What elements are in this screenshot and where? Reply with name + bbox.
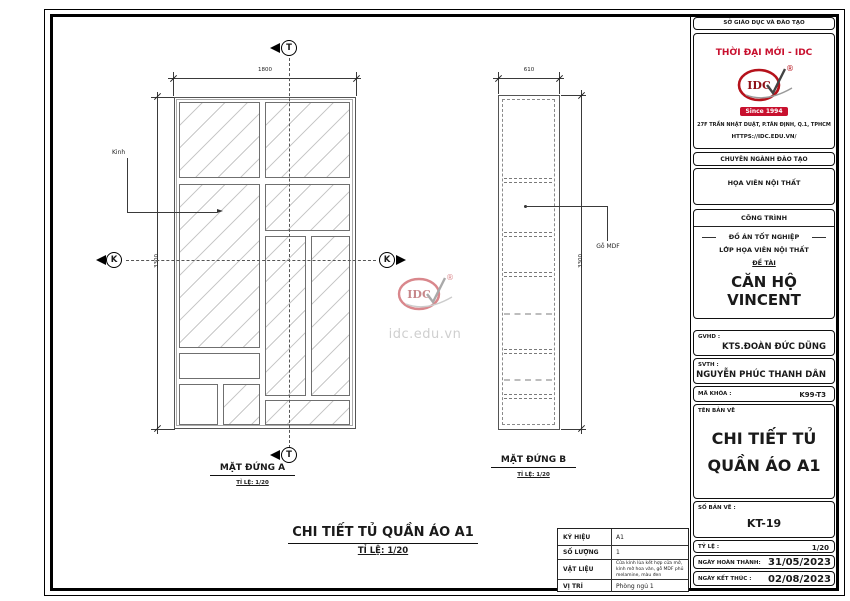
title-block-date-end: NGÀY KẾT THÚC : 02/08/2023 <box>693 571 835 586</box>
hidden-shelf-line <box>504 236 552 237</box>
section-arrow-icon <box>396 255 406 265</box>
glass-callout-label: Kinh <box>112 149 125 156</box>
section-marker-k-left: K <box>106 252 122 268</box>
title-block-student: SVTH : NGUYỄN PHÚC THANH DÂN <box>693 358 835 384</box>
title-block-advisor: GVHD : KTS.ĐOÀN ĐỨC DŨNG <box>693 330 835 356</box>
hidden-edge-rect <box>502 99 555 425</box>
hidden-shelf-line <box>504 353 552 354</box>
scale-value: 1/20 <box>812 544 829 552</box>
glass-panel <box>179 102 260 178</box>
dimension-line <box>168 78 361 79</box>
sheet-scale: TỈ LỆ: 1/20 <box>283 546 483 556</box>
hidden-shelf-line <box>504 394 552 395</box>
section-arrow-icon <box>270 450 280 460</box>
title-block-training-header: CHUYÊN NGÀNH ĐÀO TẠO <box>693 152 835 166</box>
title-block-divider <box>690 14 691 591</box>
date-completed-value: 31/05/2023 <box>768 557 831 568</box>
elevation-b-title: MẶT ĐỨNG B <box>491 455 576 468</box>
registered-mark: ® <box>446 273 454 282</box>
dim-height-b: 3300 <box>578 239 584 283</box>
date-completed-label: NGÀY HOÀN THÀNH: <box>698 560 761 566</box>
table-row: VỊ TRÍ Phòng ngủ 1 <box>558 579 688 592</box>
advisor-label: GVHD : <box>698 334 720 340</box>
class-code-label: MÃ KHÓA : <box>698 391 731 397</box>
hidden-shelf-line <box>504 276 552 277</box>
section-line-k <box>126 260 376 261</box>
leader-line <box>525 206 607 207</box>
section-line-t <box>289 58 290 448</box>
sheet-title-text: CHI TIẾT TỦ QUẦN ÁO A1 <box>288 525 478 544</box>
spec-label: KÝ HIỆU <box>558 529 612 545</box>
title-block-drawing-name: TÊN BẢN VẼ CHI TIẾT TỦ QUẦN ÁO A1 <box>693 404 835 499</box>
drawing-name-line2: QUẦN ÁO A1 <box>694 456 834 475</box>
project-header-text: CÔNG TRÌNH <box>694 210 834 227</box>
elevation-a-title: MẶT ĐỨNG A <box>210 463 295 476</box>
mdf-callout-label: Gỗ MDF <box>588 243 628 250</box>
spec-value: Cửa kính lùa kết hợp cửa mở, kính mờ hoa… <box>612 560 688 579</box>
date-end-value: 02/08/2023 <box>768 574 831 585</box>
elevation-b-scale: TỈ LỆ: 1/20 <box>491 472 576 478</box>
decor-dash <box>812 237 826 238</box>
title-block-sheet-number: SỐ BẢN VẼ : KT-19 <box>693 501 835 538</box>
drawing-name-line1: CHI TIẾT TỦ <box>694 429 834 448</box>
scale-label: TỶ LỆ : <box>698 544 719 550</box>
extension-line <box>561 429 586 430</box>
table-row: KÝ HIỆU A1 <box>558 529 688 545</box>
glass-panel <box>265 400 350 425</box>
project-type-row: ĐỒ ÁN TỐT NGHIỆP <box>694 233 834 241</box>
section-marker-t-top: T <box>281 40 297 56</box>
sheet-number-value: KT-19 <box>694 517 834 530</box>
glass-panel <box>223 384 260 425</box>
project-type-text: ĐỒ ÁN TỐT NGHIỆP <box>729 233 799 241</box>
glass-panel <box>265 102 350 178</box>
spec-value: 1 <box>612 546 688 559</box>
student-label: SVTH : <box>698 362 719 368</box>
sheet-number-label: SỐ BẢN VẼ : <box>698 505 736 511</box>
drawer-front <box>179 353 260 379</box>
leader-line <box>607 206 608 241</box>
dim-width-a: 1800 <box>245 67 285 73</box>
table-row: VẬT LIỆU Cửa kính lùa kết hợp cửa mở, kí… <box>558 559 688 579</box>
leader-arrow-icon <box>217 209 223 213</box>
hidden-shelf-line <box>504 379 552 381</box>
cabinet-door-panel <box>179 384 218 425</box>
dim-height-a: 3300 <box>154 239 160 283</box>
dim-width-b: 610 <box>508 67 550 73</box>
student-name: NGUYỄN PHÚC THANH DÂN <box>696 370 826 380</box>
hidden-shelf-line <box>504 398 552 399</box>
drawing-sheet: 1800 3300 T T K K Kinh MẶT ĐỨNG A TỈ LỆ:… <box>0 0 850 601</box>
table-row: SỐ LƯỢNG 1 <box>558 545 688 559</box>
spec-value: A1 <box>612 529 688 545</box>
spec-label: VỊ TRÍ <box>558 580 612 592</box>
hidden-shelf-line <box>504 178 552 179</box>
brand-name: THỜI ĐẠI MỚI - IDC <box>694 48 834 58</box>
section-arrow-icon <box>270 43 280 53</box>
section-marker-t-bottom: T <box>281 447 297 463</box>
topic-name: CĂN HỘ VINCENT <box>694 273 834 309</box>
hidden-shelf-line <box>504 232 552 233</box>
title-block-department: SỞ GIÁO DỤC VÀ ĐÀO TẠO <box>693 17 835 30</box>
advisor-name: KTS.ĐOÀN ĐỨC DŨNG <box>722 342 826 352</box>
spec-label: VẬT LIỆU <box>558 560 612 579</box>
training-major-text: HỌA VIÊN NỘI THẤT <box>694 169 834 187</box>
department-text: SỞ GIÁO DỤC VÀ ĐÀO TẠO <box>694 18 834 26</box>
address-text: 27F TRẦN NHẬT DUẬT, P.TÂN ĐỊNH, Q.1, TPH… <box>694 122 834 128</box>
since-badge-wrap: Since 1994 <box>694 98 834 117</box>
hidden-shelf-line <box>504 272 552 273</box>
since-badge: Since 1994 <box>740 107 787 116</box>
elevation-a-cabinet <box>174 97 356 429</box>
title-block-training-major: HỌA VIÊN NỘI THẤT <box>693 168 835 205</box>
topic-label: ĐỀ TÀI <box>694 259 834 267</box>
spec-table: KÝ HIỆU A1 SỐ LƯỢNG 1 VẬT LIỆU Cửa kính … <box>557 528 689 592</box>
training-header-text: CHUYÊN NGÀNH ĐÀO TẠO <box>694 153 834 163</box>
elevation-b-cabinet <box>498 95 560 430</box>
title-block-logo-box: THỜI ĐẠI MỚI - IDC IDC ® Since 1994 27F … <box>693 33 835 149</box>
watermark-url: idc.edu.vn <box>385 327 465 342</box>
registered-mark: ® <box>786 64 794 73</box>
glass-panel <box>265 184 350 231</box>
sheet-title: CHI TIẾT TỦ QUẦN ÁO A1 <box>283 521 483 544</box>
drawing-name-label: TÊN BẢN VẼ <box>698 408 735 414</box>
spec-label: SỐ LƯỢNG <box>558 546 612 559</box>
spec-value: Phòng ngủ 1 <box>612 580 688 592</box>
dimension-line <box>493 78 564 79</box>
elevation-a-scale: TỈ LỆ: 1/20 <box>210 480 295 486</box>
section-marker-k-right: K <box>379 252 395 268</box>
website-text: HTTPS://IDC.EDU.VN/ <box>694 134 834 140</box>
leader-line <box>127 158 128 212</box>
date-end-label: NGÀY KẾT THÚC : <box>698 576 751 582</box>
extension-line <box>559 72 560 94</box>
decor-dash <box>702 237 716 238</box>
hidden-shelf-line <box>504 182 552 183</box>
section-arrow-icon <box>96 255 106 265</box>
title-block-date-completed: NGÀY HOÀN THÀNH: 31/05/2023 <box>693 555 835 569</box>
watermark-logo: IDC ® <box>396 270 454 316</box>
class-code-value: K99-T3 <box>799 391 826 399</box>
title-block-project: CÔNG TRÌNH ĐỒ ÁN TỐT NGHIỆP LỚP HỌA VIÊN… <box>693 209 835 319</box>
hidden-shelf-line <box>504 349 552 350</box>
hidden-shelf-line <box>504 313 552 315</box>
title-block-class-code: MÃ KHÓA : K99-T3 <box>693 386 835 402</box>
title-block-scale: TỶ LỆ : 1/20 <box>693 540 835 553</box>
extension-line <box>498 72 499 94</box>
project-class-text: LỚP HỌA VIÊN NỘI THẤT <box>694 246 834 254</box>
leader-line <box>127 212 217 213</box>
